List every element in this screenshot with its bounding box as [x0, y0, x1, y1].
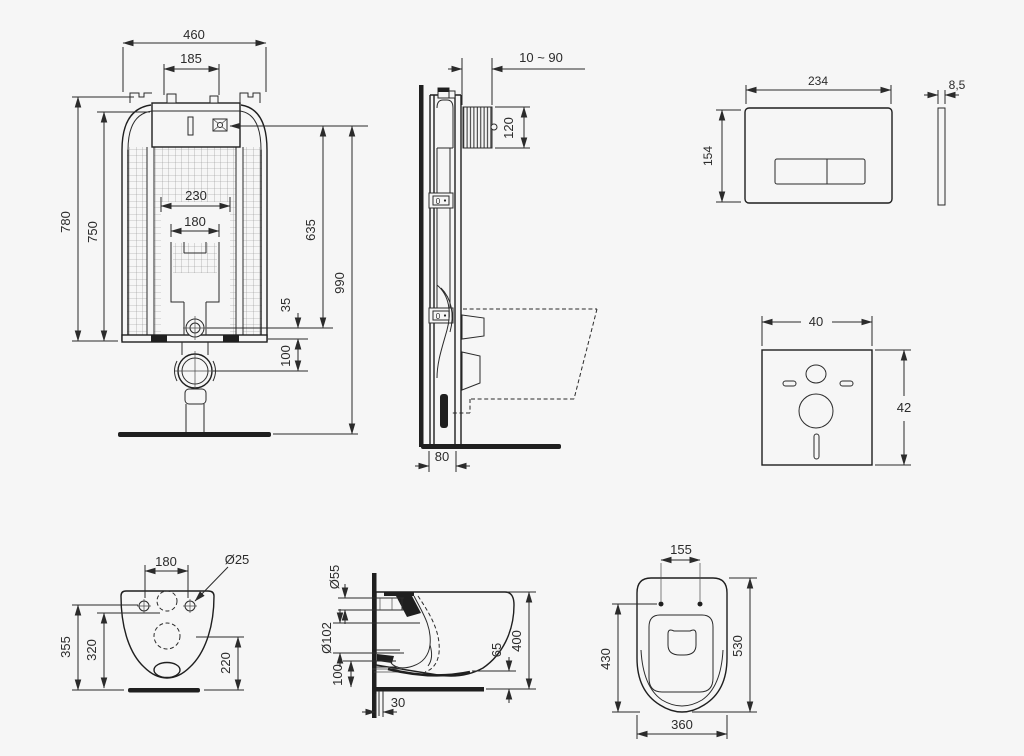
- dim-hanger-spacing: 185: [180, 51, 202, 66]
- view-cistern-frame-side: 0 0 10 ~ 90 120 80: [415, 50, 597, 472]
- dim-frame-depth: 80: [435, 449, 449, 464]
- hinge-point-right: [698, 602, 703, 607]
- dim-fixing-spacing: 180: [155, 554, 177, 569]
- outlet-spigot: [154, 663, 180, 678]
- dim-height-inner: 320: [84, 639, 99, 661]
- dim-inlet-dia: Ø55: [327, 565, 342, 590]
- view-bowl-rear: 180 Ø25 355 320 220: [58, 552, 249, 693]
- dim-mat-width: 40: [809, 314, 823, 329]
- hinge-point-left: [659, 602, 664, 607]
- dim-plate-height: 154: [701, 146, 715, 166]
- view-cistern-frame-front: 460 185 780 750 230 180 635 990 35 100: [58, 27, 368, 437]
- view-bowl-side: Ø55 Ø102 100 30 65 400: [319, 565, 536, 718]
- dim-plate-thickness: 8,5: [949, 78, 966, 92]
- dim-fixing-hole-dia: Ø25: [225, 552, 250, 567]
- dim-height-total: 355: [58, 636, 73, 658]
- dim-bowl-length: 430: [598, 648, 613, 670]
- dim-frame-height: 780: [58, 211, 73, 233]
- dim-mat-height: 42: [897, 400, 911, 415]
- dim-wall-offset: 30: [391, 695, 405, 710]
- dim-outlet-height: 220: [218, 652, 233, 674]
- technical-drawing-sheet: 460 185 780 750 230 180 635 990 35 100: [0, 0, 1024, 756]
- dim-hinge-spacing: 155: [670, 542, 692, 557]
- dim-overall-height: 990: [332, 272, 347, 294]
- view-bowl-top: 155 430 530 360: [598, 542, 757, 739]
- drawing-canvas: 460 185 780 750 230 180 635 990 35 100: [0, 0, 1024, 756]
- dim-outlet-offset: 100: [278, 345, 293, 367]
- dim-wall-depth-range: 10 ~ 90: [519, 50, 563, 65]
- floor-line: [128, 688, 200, 693]
- dim-inner-height: 750: [85, 221, 100, 243]
- view-sound-insulation-mat: 40 42: [762, 314, 911, 465]
- insulation-mat: [762, 350, 872, 465]
- dim-mount-height: 400: [509, 630, 524, 652]
- dim-valve-height: 635: [303, 219, 318, 241]
- dim-overall-width: 460: [183, 27, 205, 42]
- dim-supply-offset: 35: [278, 298, 293, 312]
- hanger-brackets: [130, 93, 260, 103]
- mounting-blocks: [462, 315, 484, 390]
- flush-buttons: [775, 159, 865, 184]
- dim-cutout-width: 230: [185, 188, 207, 203]
- floor-line: [374, 687, 484, 692]
- adjust-marker-top-label: 0: [436, 197, 441, 206]
- flush-plate-edge: [938, 108, 945, 205]
- adjust-marker-box-top: 0: [429, 193, 453, 208]
- view-flush-plate: 234 154 8,5: [701, 74, 966, 205]
- fill-valve-icon: [213, 119, 227, 131]
- adjust-marker-bottom-label: 0: [436, 312, 441, 321]
- dim-bend-width: 180: [184, 214, 206, 229]
- bowl-side-outline: [376, 592, 514, 676]
- dim-width: 360: [671, 717, 693, 732]
- support-foot: [186, 404, 204, 432]
- inspection-shaft: [463, 107, 492, 148]
- wall-line: [419, 85, 424, 447]
- dim-plate-width: 234: [808, 74, 828, 88]
- base-plate: [118, 432, 271, 437]
- frame-profile: [430, 95, 461, 444]
- dim-rim-clearance: 65: [489, 643, 504, 657]
- dim-total-length: 530: [730, 635, 745, 657]
- dim-outlet-dia: Ø102: [319, 622, 334, 654]
- dim-outlet-center-height: 100: [330, 664, 345, 686]
- flush-plate-face: [745, 108, 892, 203]
- dim-plate-opening-height: 120: [501, 117, 516, 139]
